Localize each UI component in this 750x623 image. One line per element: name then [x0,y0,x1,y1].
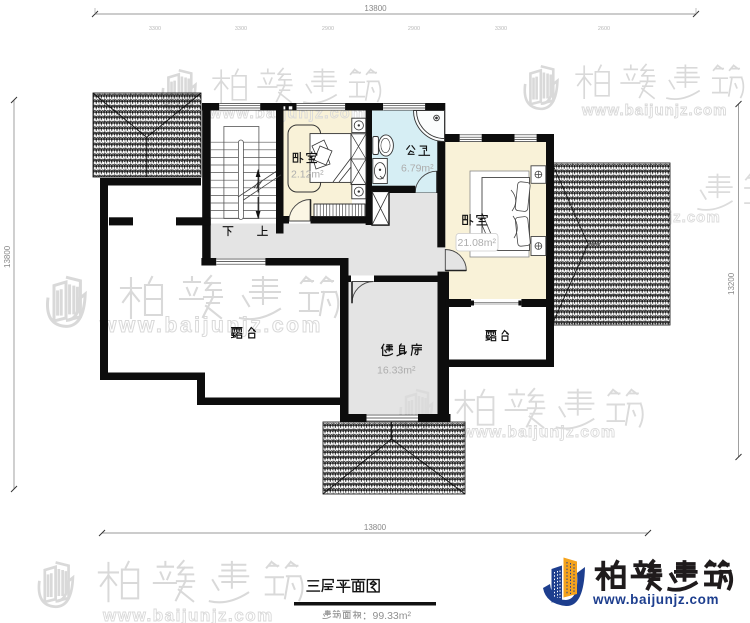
svg-text:21.08m²: 21.08m² [458,237,497,249]
svg-text:2900: 2900 [408,26,420,32]
svg-text:3300: 3300 [235,26,247,32]
svg-text:2.12m²: 2.12m² [291,169,324,181]
svg-text:2600: 2600 [598,26,610,32]
svg-text:：99.33m²: ：99.33m² [362,610,412,622]
svg-text:13800: 13800 [364,4,387,13]
svg-text:jz.com: jz.com [667,209,721,226]
svg-text:13800: 13800 [364,523,387,532]
svg-text:www.baijunjz.com: www.baijunjz.com [592,592,719,607]
svg-text:www.baijunjz.com: www.baijunjz.com [581,102,727,119]
svg-text:3300: 3300 [149,26,161,32]
svg-text:3300: 3300 [495,26,507,32]
svg-text:13800: 13800 [3,245,12,268]
svg-text:www.baijunjz.com: www.baijunjz.com [102,606,274,623]
svg-text:www.baijunjz.com: www.baijunjz.com [99,314,323,337]
svg-text:6.79m²: 6.79m² [401,163,434,175]
svg-text:www.baijunjz.com: www.baijunjz.com [461,424,616,441]
svg-text:13200: 13200 [727,272,736,295]
svg-text:16.33m²: 16.33m² [377,365,416,377]
svg-text:2900: 2900 [322,26,334,32]
